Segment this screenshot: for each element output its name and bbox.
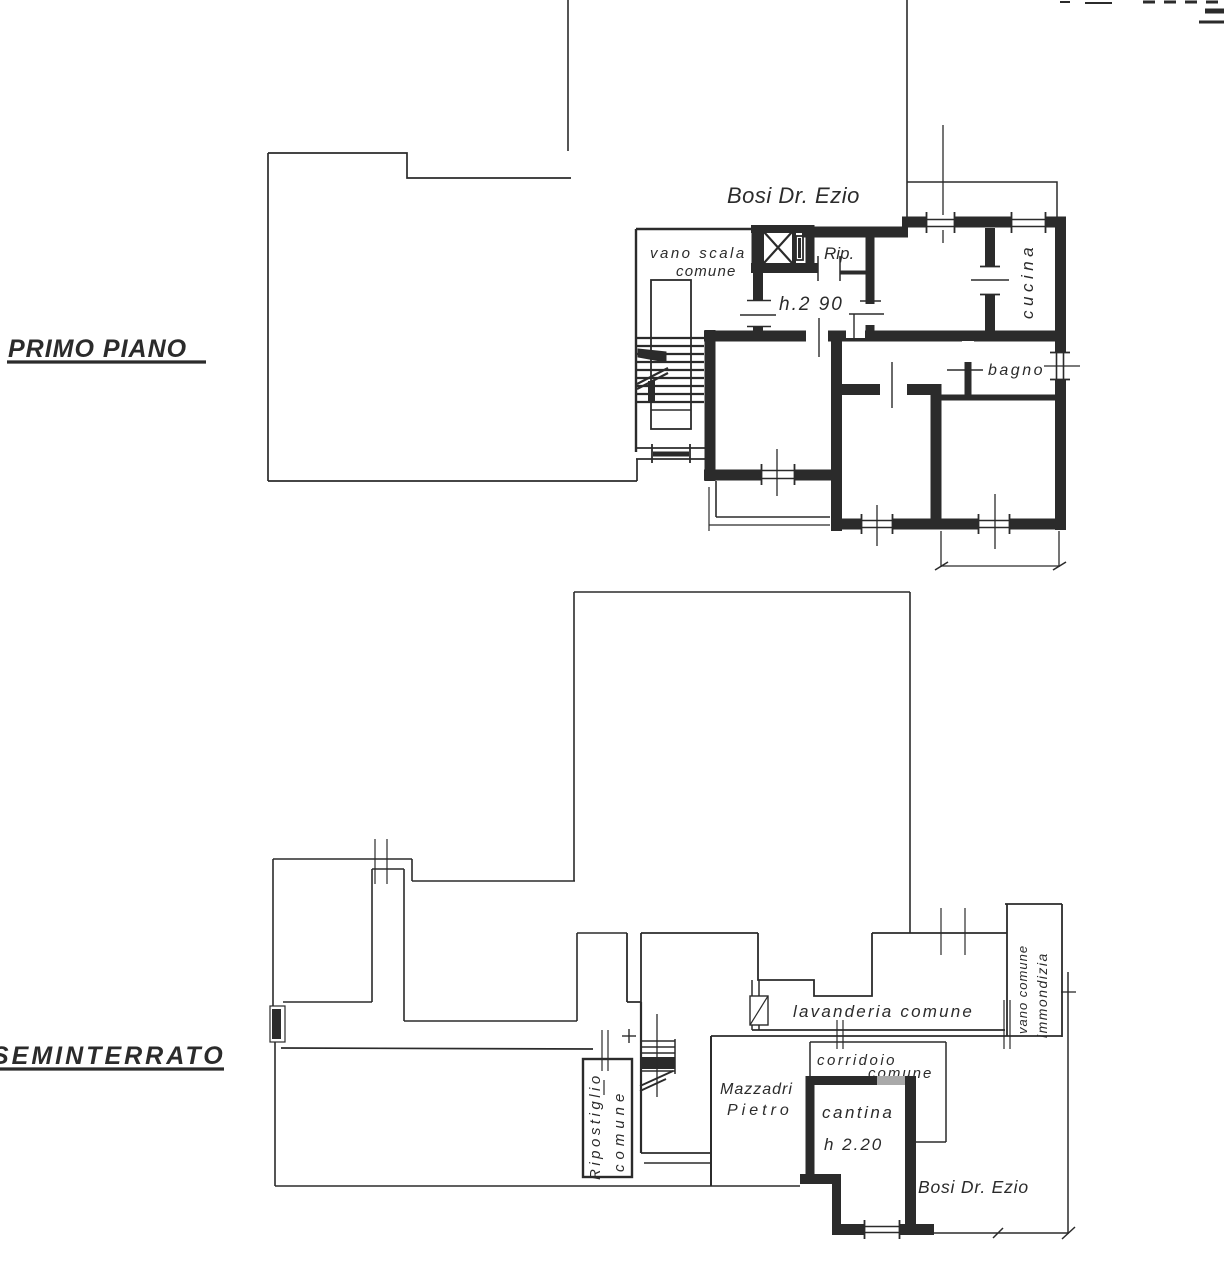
svg-text:Mazzadri: Mazzadri [720, 1081, 793, 1098]
svg-text:Bosi Dr. Ezio: Bosi Dr. Ezio [918, 1177, 1029, 1197]
svg-text:PRIMO PIANO: PRIMO PIANO [8, 335, 187, 363]
svg-text:immondizia: immondizia [1034, 952, 1050, 1038]
svg-text:cantina: cantina [822, 1103, 894, 1122]
svg-text:Bosi Dr. Ezio: Bosi Dr. Ezio [727, 183, 860, 208]
svg-text:lavanderia comune: lavanderia comune [793, 1002, 974, 1021]
svg-text:comune: comune [676, 263, 737, 280]
svg-text:vano scala: vano scala [650, 245, 747, 262]
svg-text:bagno: bagno [988, 362, 1045, 379]
svg-text:Pietro: Pietro [727, 1102, 793, 1119]
svg-text:h.2 90: h.2 90 [779, 294, 844, 315]
svg-text:vano comune: vano comune [1015, 945, 1030, 1034]
svg-text:Rip.: Rip. [824, 244, 854, 263]
svg-text:SEMINTERRATO: SEMINTERRATO [0, 1042, 226, 1070]
svg-text:h 2.20: h 2.20 [824, 1135, 883, 1154]
svg-text:Ripostiglio: Ripostiglio [587, 1072, 604, 1180]
svg-text:cucina: cucina [1018, 243, 1037, 319]
svg-text:comune: comune [611, 1089, 628, 1172]
